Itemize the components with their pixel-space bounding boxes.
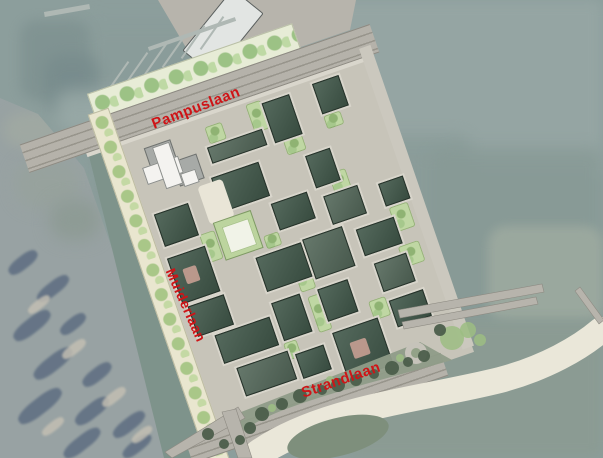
tree xyxy=(396,354,404,362)
tree xyxy=(418,350,430,362)
tree xyxy=(434,324,446,336)
tree xyxy=(268,404,276,412)
tree xyxy=(219,439,229,449)
tree xyxy=(202,428,214,440)
tree xyxy=(244,422,256,434)
tree xyxy=(403,357,413,367)
bridge-road xyxy=(575,287,603,324)
tree xyxy=(385,361,399,375)
tree xyxy=(460,322,476,338)
tree xyxy=(255,407,269,421)
tree xyxy=(235,435,245,445)
tree xyxy=(276,398,288,410)
map-canvas: Pampuslaan Muiderlaan Strandlaan xyxy=(0,0,603,458)
tree xyxy=(474,334,486,346)
